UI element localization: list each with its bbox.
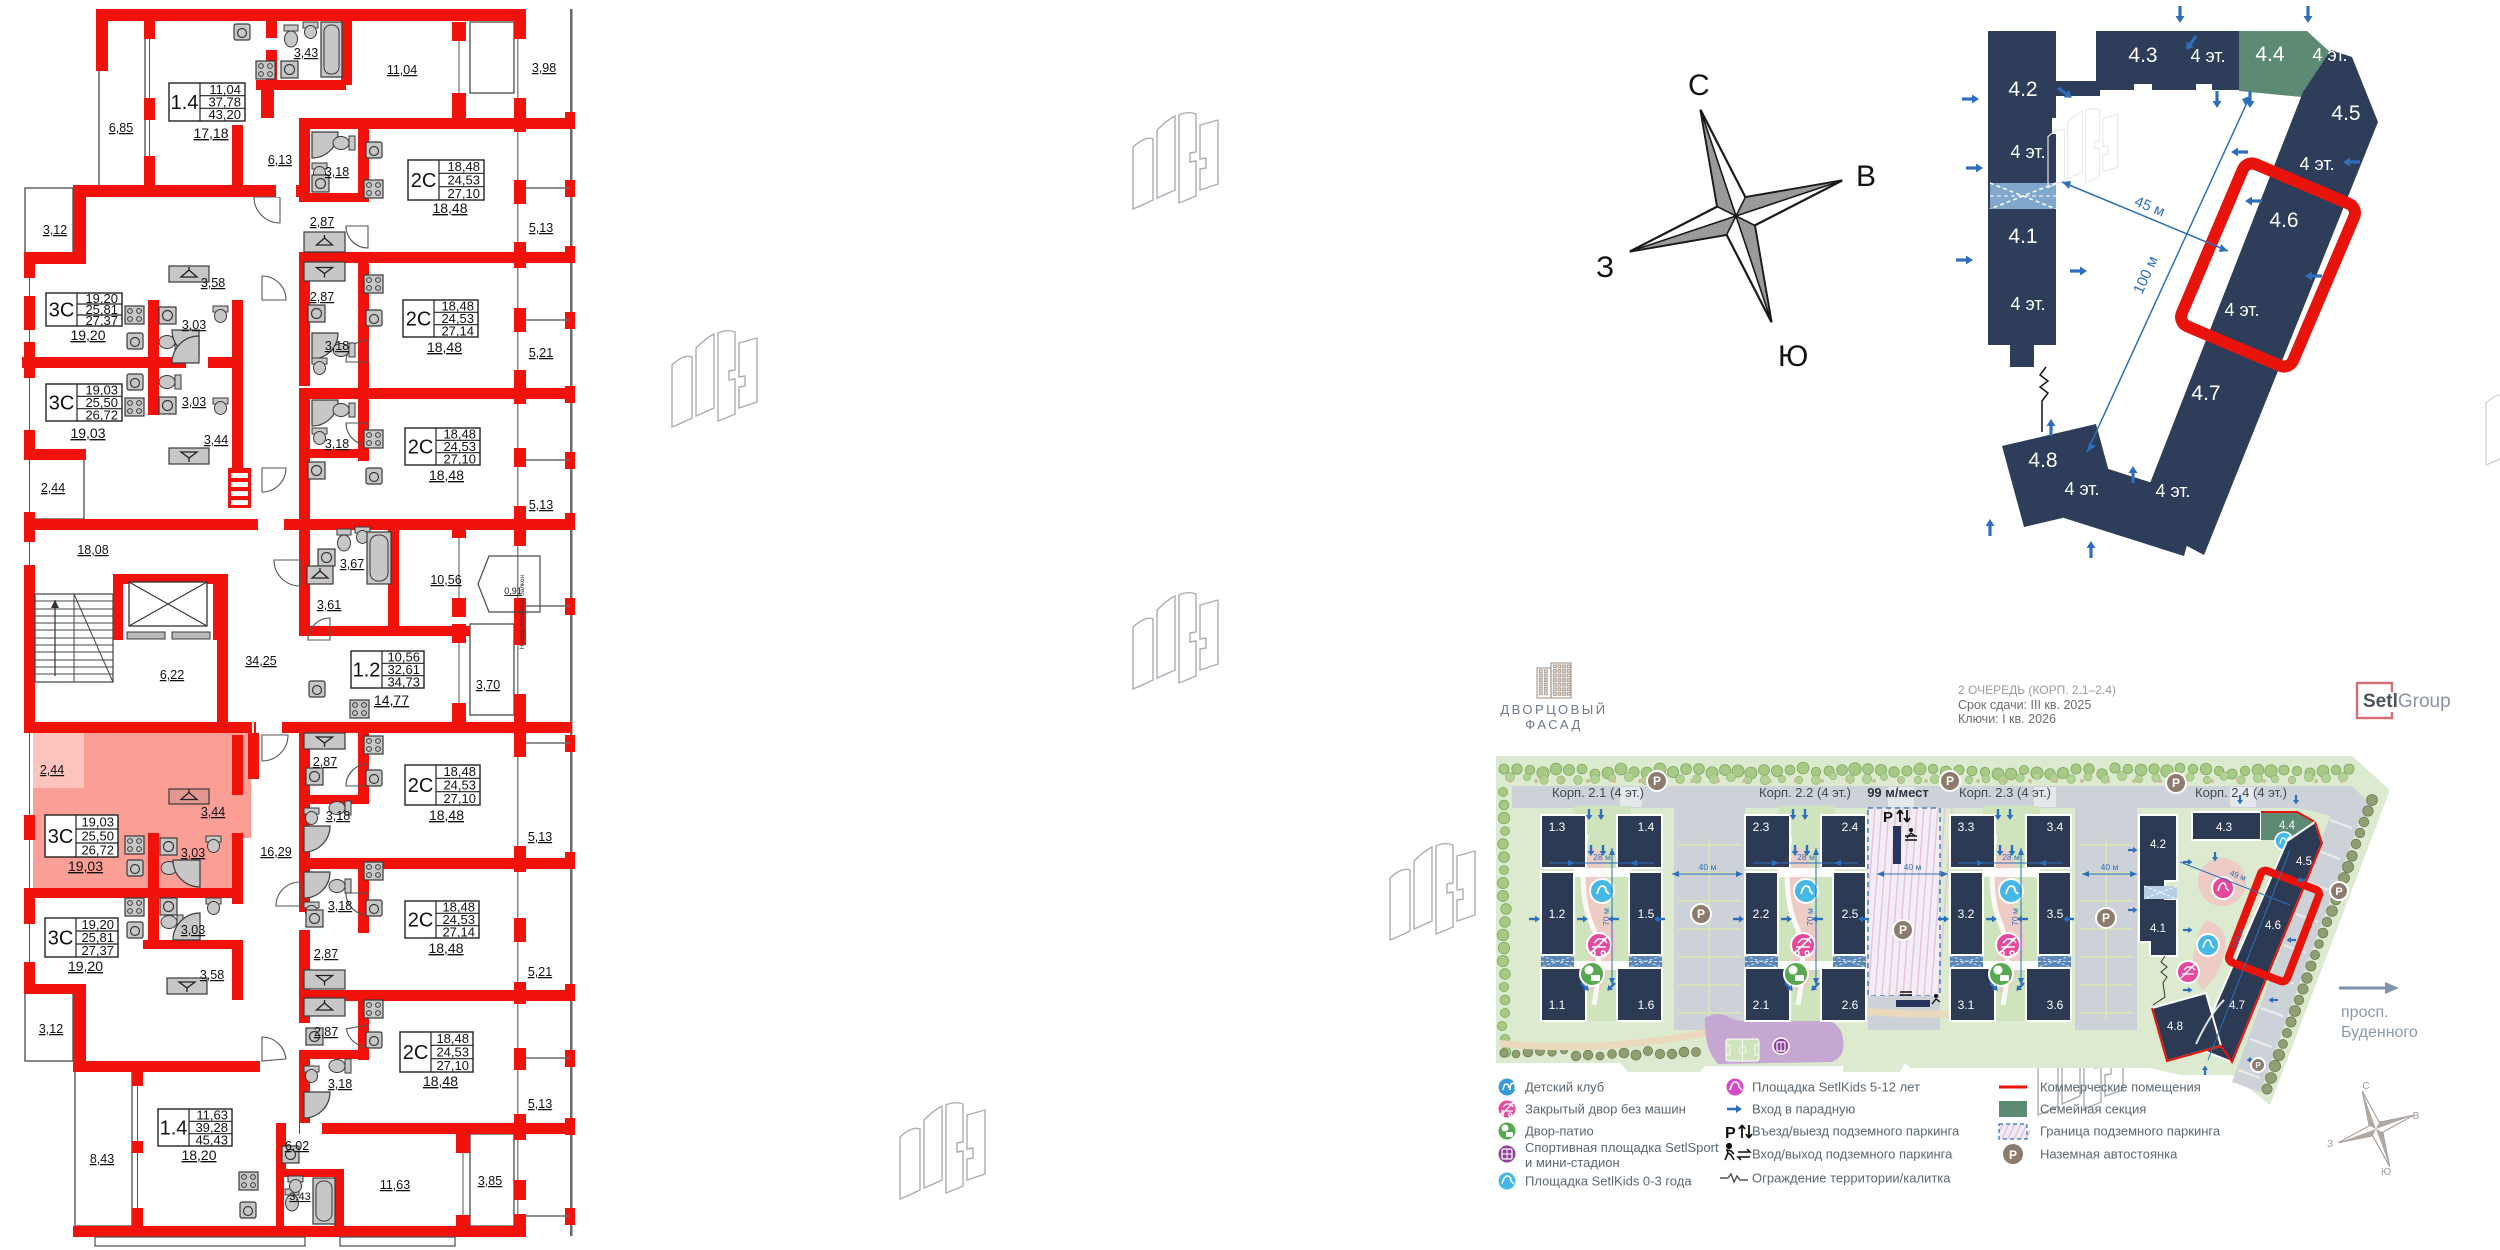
svg-text:3,58: 3,58 [201,276,225,290]
svg-text:27,10: 27,10 [443,451,476,466]
svg-text:4.2: 4.2 [2008,78,2037,101]
svg-text:Наземная автостоянка: Наземная автостоянка [2040,1147,2178,1162]
svg-text:3С: 3С [49,393,75,415]
svg-text:11,04: 11,04 [387,63,417,77]
svg-text:4.8: 4.8 [2167,1021,2183,1033]
svg-text:3,03: 3,03 [181,923,205,937]
svg-text:5,21: 5,21 [528,965,552,979]
svg-text:P: P [2102,911,2110,925]
svg-text:З: З [1596,251,1614,284]
svg-text:4.7: 4.7 [2229,1000,2245,1012]
svg-text:17,18: 17,18 [193,125,228,141]
svg-text:4.4: 4.4 [2279,820,2296,832]
svg-text:19,03: 19,03 [81,815,114,830]
svg-text:Спортивная площадка SetlSport: Спортивная площадка SetlSport [1525,1140,1719,1155]
svg-text:27,10: 27,10 [436,1058,469,1073]
svg-text:2С: 2С [408,910,434,932]
svg-text:3С: 3С [49,300,75,322]
svg-text:2С: 2С [408,437,434,459]
svg-text:4.5: 4.5 [2296,856,2312,868]
svg-text:43,20: 43,20 [208,107,241,122]
svg-text:1.2: 1.2 [353,660,381,682]
svg-text:18,20: 18,20 [181,1147,216,1163]
svg-text:4 эт.: 4 эт. [2299,154,2334,174]
svg-text:14,77: 14,77 [374,692,409,708]
svg-text:34,25: 34,25 [245,654,276,668]
svg-text:Двор-патио: Двор-патио [1525,1124,1594,1139]
svg-text:P: P [1697,907,1705,921]
svg-text:2,44: 2,44 [41,481,65,495]
svg-text:4 эт.: 4 эт. [2010,142,2045,162]
svg-text:3.1: 3.1 [1958,998,1975,1012]
svg-text:Ограждение территории/калитка: Ограждение территории/калитка [1752,1171,1951,1186]
svg-text:Детский клуб: Детский клуб [1525,1080,1604,1095]
svg-text:Въезд/выезд подземного паркинг: Въезд/выезд подземного паркинга [1752,1124,1960,1139]
svg-text:18,48: 18,48 [427,339,462,355]
svg-text:3,58: 3,58 [200,968,224,982]
svg-text:4.6: 4.6 [2265,920,2281,932]
svg-text:3,12: 3,12 [43,223,67,237]
svg-text:4 эт.: 4 эт. [2312,45,2347,65]
svg-text:P: P [1899,923,1907,937]
svg-text:4.5: 4.5 [2331,102,2360,125]
svg-text:18,48: 18,48 [428,940,463,956]
svg-text:2.3: 2.3 [1753,820,1770,834]
svg-text:100 м: 100 м [2130,254,2162,297]
svg-text:5,13: 5,13 [529,498,553,512]
svg-text:3,98: 3,98 [532,61,556,75]
svg-text:4.7: 4.7 [2191,382,2220,405]
svg-text:26,72: 26,72 [85,407,118,422]
svg-text:3С: 3С [48,826,74,848]
svg-text:3,18: 3,18 [326,809,350,823]
svg-text:4.8: 4.8 [2028,449,2057,472]
svg-text:3,67: 3,67 [340,557,364,571]
svg-text:26,72: 26,72 [81,843,114,858]
svg-text:5,13: 5,13 [528,1097,552,1111]
svg-text:4 эт.: 4 эт. [2010,294,2045,314]
svg-text:4 эт.: 4 эт. [2155,481,2190,501]
svg-text:2С: 2С [411,170,437,192]
svg-text:10,56: 10,56 [430,573,461,587]
svg-text:45 м: 45 м [2132,193,2167,220]
svg-text:3,18: 3,18 [328,899,352,913]
svg-text:18,48: 18,48 [429,467,464,483]
svg-text:3.6: 3.6 [2047,998,2064,1012]
svg-text:В: В [2413,1111,2420,1122]
svg-text:P: P [1946,774,1954,788]
svg-text:6,22: 6,22 [160,668,184,682]
svg-text:Площадка SetlKids 0-3 года: Площадка SetlKids 0-3 года [1525,1174,1692,1189]
svg-text:Незадымляемый балкон: Незадымляемый балкон [518,574,526,649]
svg-text:3,43: 3,43 [289,1191,310,1203]
svg-text:27,14: 27,14 [441,323,474,338]
svg-text:40 м: 40 м [2101,862,2119,872]
svg-text:18,48: 18,48 [429,807,464,823]
svg-text:Буденного: Буденного [2341,1024,2418,1041]
svg-text:Коммерческие помещения: Коммерческие помещения [2040,1080,2201,1095]
svg-text:6,13: 6,13 [268,153,292,167]
svg-text:4.3: 4.3 [2216,822,2232,834]
svg-text:18,48: 18,48 [432,200,467,216]
svg-text:2.2: 2.2 [1753,907,1770,921]
svg-text:27,37: 27,37 [85,313,118,328]
svg-text:2,87: 2,87 [310,290,334,304]
svg-text:3,43: 3,43 [294,46,318,60]
svg-text:Корп. 2.1 (4 эт.): Корп. 2.1 (4 эт.) [1552,785,1644,800]
svg-text:70 м: 70 м [1601,908,1611,926]
svg-text:4.1: 4.1 [2008,225,2037,248]
svg-text:2,87: 2,87 [314,1025,338,1039]
svg-text:27,10: 27,10 [443,791,476,806]
svg-text:Корп. 2.3 (4 эт.): Корп. 2.3 (4 эт.) [1959,785,2051,800]
svg-text:2С: 2С [406,309,432,331]
svg-text:Срок сдачи: III кв. 2025: Срок сдачи: III кв. 2025 [1958,698,2091,712]
svg-text:ДВОРЦОВЫЙ: ДВОРЦОВЫЙ [1500,702,1607,717]
svg-text:27,37: 27,37 [81,943,114,958]
svg-text:40 м: 40 м [1904,862,1922,872]
svg-text:1.1: 1.1 [1549,998,1566,1012]
svg-text:4.6: 4.6 [2269,209,2298,232]
svg-text:Ю: Ю [1778,340,1808,373]
svg-text:Площадка SetlKids 5-12 лет: Площадка SetlKids 5-12 лет [1752,1080,1920,1095]
svg-text:и мини-стадион: и мини-стадион [1525,1155,1620,1170]
svg-text:просп.: просп. [2341,1004,2389,1021]
svg-text:В: В [1856,160,1876,193]
svg-text:P: P [2255,1061,2261,1070]
svg-text:45,43: 45,43 [195,1132,228,1147]
svg-text:P: P [1725,1125,1736,1142]
svg-text:19,20: 19,20 [70,327,105,343]
svg-text:70 м: 70 м [2010,908,2020,926]
svg-text:19,20: 19,20 [68,958,103,974]
svg-text:99 м/мест: 99 м/мест [1867,785,1929,800]
svg-text:2.1: 2.1 [1753,998,1770,1012]
svg-text:P: P [2335,886,2342,898]
svg-text:З: З [2327,1139,2333,1150]
svg-text:4.4: 4.4 [2255,43,2285,66]
svg-text:Вход/выход подземного паркинга: Вход/выход подземного паркинга [1752,1147,1953,1162]
svg-text:3,18: 3,18 [325,339,349,353]
svg-text:3,03: 3,03 [182,395,206,409]
svg-text:С: С [1688,69,1710,102]
svg-text:2 ОЧЕРЕДЬ (КОРП. 2.1–2.4): 2 ОЧЕРЕДЬ (КОРП. 2.1–2.4) [1958,683,2116,697]
svg-text:34,73: 34,73 [387,674,420,689]
svg-text:3,70: 3,70 [476,678,500,692]
svg-text:P: P [2172,776,2180,790]
svg-text:Граница подземного паркинга: Граница подземного паркинга [2040,1124,2221,1139]
svg-text:2,87: 2,87 [310,215,334,229]
svg-text:3,03: 3,03 [182,318,206,332]
svg-text:4.3: 4.3 [2128,44,2157,67]
svg-text:Семейная секция: Семейная секция [2040,1102,2146,1117]
svg-text:3,18: 3,18 [325,437,349,451]
svg-text:3.2: 3.2 [1958,907,1975,921]
svg-text:3,03: 3,03 [181,846,205,860]
svg-text:16,29: 16,29 [260,845,291,859]
svg-text:6,85: 6,85 [109,121,133,135]
svg-text:70 м: 70 м [1805,908,1815,926]
svg-text:С: С [2362,1081,2369,1092]
svg-text:28 м: 28 м [1797,852,1815,862]
svg-text:4.2: 4.2 [2150,839,2166,851]
svg-text:27,10: 27,10 [447,186,480,201]
svg-text:Закрытый двор без машин: Закрытый двор без машин [1525,1102,1686,1117]
svg-text:4 эт.: 4 эт. [2224,300,2259,320]
svg-text:8,43: 8,43 [90,1152,114,1166]
svg-text:4 эт.: 4 эт. [2064,479,2099,499]
svg-text:1.6: 1.6 [1638,998,1655,1012]
svg-text:3,85: 3,85 [478,1174,502,1188]
svg-text:2.5: 2.5 [1842,907,1859,921]
svg-text:3.4: 3.4 [2047,820,2064,834]
svg-text:27,14: 27,14 [442,924,475,939]
svg-text:4 эт.: 4 эт. [2190,46,2225,66]
svg-text:Корп. 2.2 (4 эт.): Корп. 2.2 (4 эт.) [1759,785,1851,800]
svg-text:Вход в парадную: Вход в парадную [1752,1102,1856,1117]
svg-text:1.4: 1.4 [1638,820,1655,834]
svg-text:5,21: 5,21 [529,346,553,360]
svg-text:P: P [2009,1148,2017,1162]
svg-text:3,44: 3,44 [201,805,225,819]
svg-text:28 м: 28 м [1593,852,1611,862]
svg-text:1.4: 1.4 [160,1118,188,1140]
svg-text:2,87: 2,87 [313,755,337,769]
svg-text:P: P [1883,809,1893,826]
svg-text:2,87: 2,87 [314,947,338,961]
svg-text:Ключи: I кв. 2026: Ключи: I кв. 2026 [1958,712,2056,726]
svg-text:SetlGroup: SetlGroup [2363,691,2451,712]
svg-text:6,02: 6,02 [285,1139,309,1153]
svg-text:19,03: 19,03 [68,858,103,874]
svg-text:ФАСАД: ФАСАД [1525,717,1583,732]
svg-text:18,08: 18,08 [77,543,108,557]
svg-text:3,44: 3,44 [204,433,228,447]
svg-text:19,03: 19,03 [70,425,105,441]
svg-text:28 м: 28 м [2002,852,2020,862]
svg-text:3,18: 3,18 [328,1077,352,1091]
svg-text:1.3: 1.3 [1549,820,1566,834]
svg-text:1.4: 1.4 [171,92,199,114]
svg-text:5,13: 5,13 [528,830,552,844]
svg-text:1.2: 1.2 [1549,907,1566,921]
svg-text:2,44: 2,44 [40,763,64,777]
svg-text:3,12: 3,12 [39,1022,63,1036]
svg-text:3.5: 3.5 [2047,907,2064,921]
svg-text:18,48: 18,48 [423,1073,458,1089]
svg-text:5,13: 5,13 [529,221,553,235]
svg-text:2.4: 2.4 [1842,820,1859,834]
svg-text:25,50: 25,50 [81,829,114,844]
svg-text:2С: 2С [403,1042,429,1064]
svg-text:3С: 3С [48,928,74,950]
svg-text:4.1: 4.1 [2150,923,2166,935]
svg-text:2.6: 2.6 [1842,998,1859,1012]
svg-text:3,18: 3,18 [325,165,349,179]
svg-text:3.3: 3.3 [1958,820,1975,834]
svg-text:Ю: Ю [2381,1167,2391,1178]
svg-text:P: P [1653,774,1661,788]
svg-text:40 м: 40 м [1699,862,1717,872]
svg-text:11,63: 11,63 [380,1178,410,1192]
svg-text:3,61: 3,61 [317,598,341,612]
svg-text:2С: 2С [408,775,434,797]
svg-text:1.5: 1.5 [1638,907,1655,921]
